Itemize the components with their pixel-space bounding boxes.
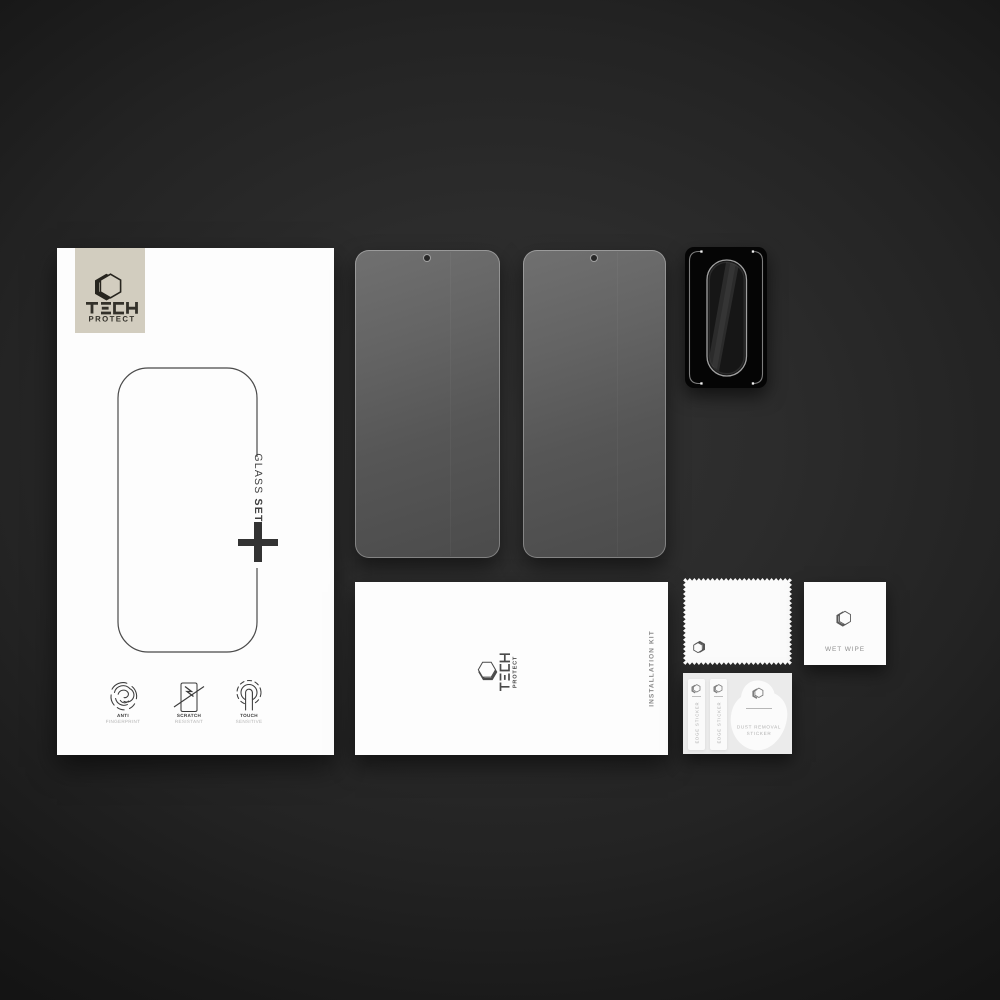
svg-text:STICKER: STICKER: [747, 731, 772, 736]
svg-text:DUST REMOVAL: DUST REMOVAL: [737, 725, 781, 730]
svg-text:PROTECT: PROTECT: [513, 656, 518, 688]
